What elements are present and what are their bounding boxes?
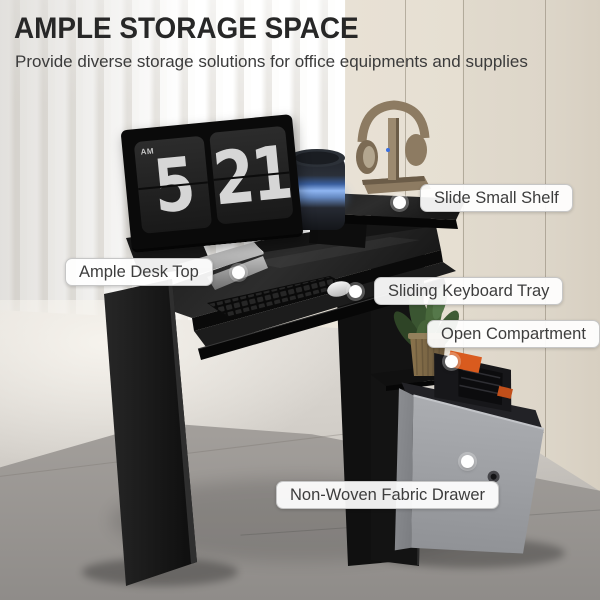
headphones-on-stand (356, 105, 431, 194)
flip-clock-minute-panel: 21 (209, 126, 293, 225)
callout-non-woven-fabric-drawer: Non-Woven Fabric Drawer (276, 481, 499, 509)
callout-open-compartment: Open Compartment (427, 320, 600, 348)
clock-period: AM (140, 146, 154, 156)
callout-slide-small-shelf: Slide Small Shelf (420, 184, 573, 212)
page-subtitle: Provide diverse storage solutions for of… (15, 52, 528, 72)
page-title: AMPLE STORAGE SPACE (14, 12, 359, 46)
ear-cup (405, 134, 427, 166)
callout-dot-non-woven-fabric-drawer (461, 455, 474, 468)
callout-sliding-keyboard-tray: Sliding Keyboard Tray (374, 277, 563, 305)
callout-dot-open-compartment (445, 355, 458, 368)
callout-ample-desk-top: Ample Desk Top (65, 258, 213, 286)
callout-dot-ample-desk-top (232, 266, 245, 279)
product-infographic: 5 AM 21 AMPLE STORAGE SPACE Provide dive… (0, 0, 600, 600)
flip-clock-hour-panel: 5 AM (134, 136, 212, 234)
callout-dot-slide-small-shelf (393, 196, 406, 209)
monitor-screen: 5 AM 21 (121, 114, 304, 253)
callout-dot-sliding-keyboard-tray (349, 285, 362, 298)
